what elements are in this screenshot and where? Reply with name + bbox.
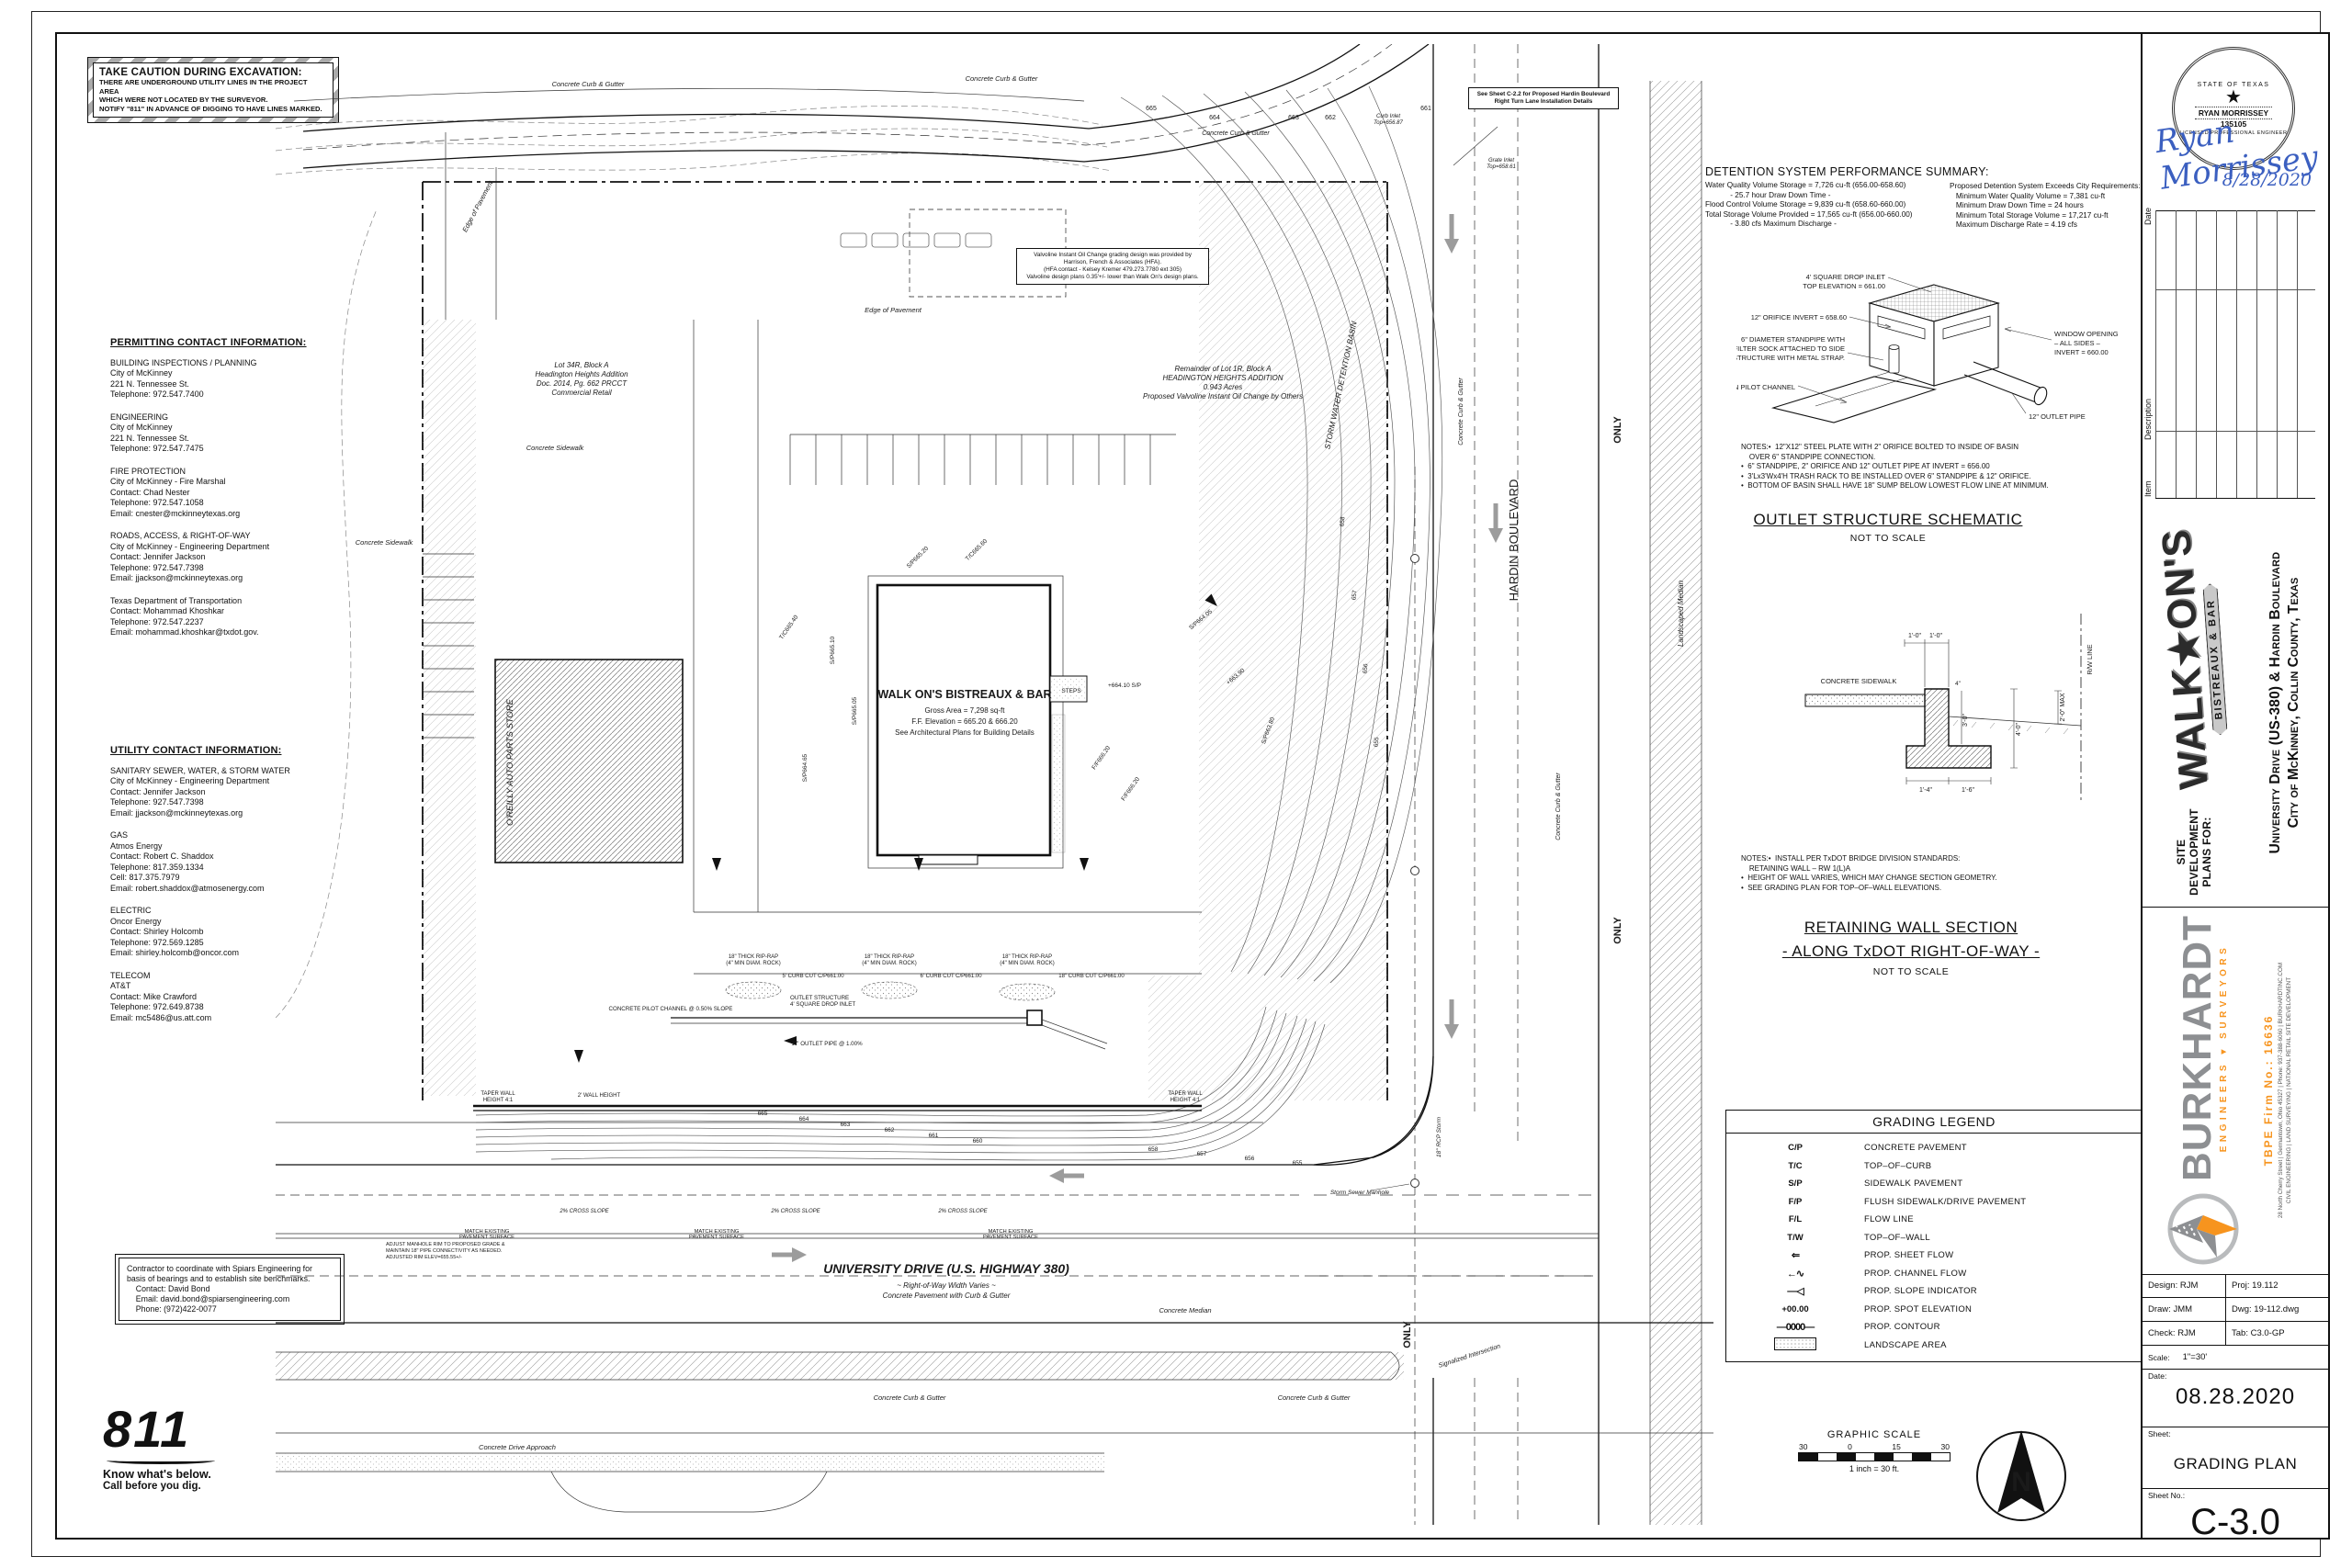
legend-symbol: F/P — [1726, 1197, 1864, 1207]
plan-label: 660 — [973, 1138, 983, 1145]
plan-label: 17' OUTLET PIPE @ 1.00% — [791, 1041, 863, 1047]
legend-label: LANDSCAPE AREA — [1864, 1340, 1947, 1350]
plan-label: Concrete Sidewalk — [526, 444, 585, 452]
retaining-title: RETAINING WALL SECTION — [1769, 919, 2053, 937]
811-tagline-1: Know what's below. — [103, 1468, 241, 1481]
sheet-no-label: Sheet No.: — [2148, 1491, 2323, 1500]
sheet-flow-icon: ⇐ — [1726, 1249, 1864, 1261]
scale-tick: 0 — [1848, 1442, 1852, 1451]
plan-label: 2% CROSS SLOPE — [559, 1209, 609, 1214]
retaining-notes: NOTES:• INSTALL PER TxDOT BRIDGE DIVISIO… — [1741, 854, 2173, 893]
plan-label: OUTLET STRUCTURE — [790, 995, 849, 1001]
retaining-label: 4" — [1955, 681, 1962, 687]
detention-basin-hatch — [1148, 182, 1387, 1100]
detention-left-column: Water Quality Volume Storage = 7,726 cu-… — [1705, 181, 1937, 231]
plan-label: +664.10 S/P — [1108, 682, 1141, 689]
sheet-number: C-3.0 — [2148, 1502, 2323, 1543]
graphic-scale-title: GRAPHIC SCALE — [1773, 1429, 1975, 1440]
university-median-hatch — [276, 1352, 1404, 1380]
legend-row: T/WTOP–OF–WALL — [1726, 1229, 2142, 1247]
plan-label: HARDIN BOULEVARD — [1507, 479, 1521, 602]
plan-label: (4" MIN DIAM. ROCK) — [862, 961, 916, 966]
plan-label: ADJUSTED RIM ELEV=655.55+/- — [386, 1255, 462, 1260]
plan-label: 2% CROSS SLOPE — [937, 1209, 988, 1214]
title-block: Date Description Item STATE OF TEXAS ★ R… — [2141, 32, 2330, 1540]
plan-label: 0.943 Acres — [1204, 383, 1242, 391]
pilot-channel — [671, 982, 1107, 1049]
plan-label: 665 — [1146, 106, 1157, 112]
south-sidewalk-stipple — [276, 1453, 1104, 1472]
plan-label: 6' CURB CUT C/P661.00 — [920, 974, 982, 979]
plan-label: Lot 34R, Block A — [554, 361, 608, 369]
outlet-structure-schematic: 4' SQUARE DROP INLETTOP ELEVATION = 661.… — [1736, 268, 2150, 438]
plan-label: Concrete Drive Approach — [479, 1443, 556, 1451]
plan-label: 661 — [929, 1133, 939, 1139]
outlet-label: 4' SQUARE DROP INLET — [1806, 273, 1886, 281]
scale-tick: 15 — [1892, 1442, 1900, 1451]
retaining-label: 3'-0" — [1962, 714, 1969, 727]
oreilly-building — [495, 660, 683, 863]
legend-symbol: T/W — [1726, 1233, 1864, 1243]
plan-label: (4" MIN DIAM. ROCK) — [1000, 961, 1054, 966]
legend-label: PROP. SPOT ELEVATION — [1864, 1304, 1972, 1314]
plan-label: CONCRETE PILOT CHANNEL @ 0.50% SLOPE — [609, 1006, 733, 1012]
retaining-label: CONCRETE SIDEWALK — [1821, 677, 1897, 685]
plan-label: Doc. 2014, Pg. 662 PRCCT — [537, 379, 628, 388]
plan-label: WALK ON'S BISTREAUX & BAR — [877, 688, 1051, 701]
plan-label: STEPS — [1061, 688, 1081, 694]
see-sheet-note-box: See Sheet C-2.2 for Proposed Hardin Boul… — [1468, 87, 1619, 109]
plan-label: UNIVERSITY DRIVE (U.S. HIGHWAY 380) — [823, 1261, 1069, 1276]
legend-row: —0000—PROP. CONTOUR — [1726, 1318, 2142, 1337]
retaining-label: 1'-6" — [1962, 787, 1974, 794]
legend-row: —◁PROP. SLOPE INDICATOR — [1726, 1282, 2142, 1301]
detention-title: DETENTION SYSTEM PERFORMANCE SUMMARY: — [1705, 165, 2148, 178]
plan-label: Concrete Curb & Gutter — [552, 80, 625, 88]
plan-label: 662 — [1325, 115, 1336, 121]
spot-elevation-symbol: +00.00 — [1726, 1304, 1864, 1314]
legend-row: +00.00PROP. SPOT ELEVATION — [1726, 1301, 2142, 1319]
outlet-schematic-title: OUTLET STRUCTURE SCHEMATIC — [1750, 511, 2026, 529]
retaining-notes-lines: • INSTALL PER TxDOT BRIDGE DIVISION STAN… — [1741, 854, 1997, 892]
tbpe-number: TBPE Firm No.: 16636 — [2262, 907, 2275, 1274]
valvoline-note-box: Valvoline Instant Oil Change grading des… — [1016, 248, 1209, 285]
plan-label: Concrete Median — [1159, 1306, 1211, 1314]
plan-label: Concrete Curb & Gutter — [1278, 1393, 1351, 1402]
retaining-label: 1'-4" — [1919, 787, 1932, 794]
plan-label: Remainder of Lot 1R, Block A — [1174, 365, 1271, 373]
legend-row: F/PFLUSH SIDEWALK/DRIVE PAVEMENT — [1726, 1193, 2142, 1212]
plan-label: 4' SQUARE DROP INLET — [790, 1001, 855, 1008]
legend-symbol: S/P — [1726, 1179, 1864, 1189]
channel-flow-icon: ←∿ — [1726, 1268, 1864, 1280]
plan-label: 2' WALL HEIGHT — [578, 1093, 621, 1099]
drawn-by: Draw: JMM — [2143, 1298, 2226, 1321]
retaining-label: 4'-0" — [2016, 723, 2022, 736]
burkhardt-wordmark: BURKHARDT — [2177, 907, 2218, 1190]
plan-label: Concrete Pavement with Curb & Gutter — [883, 1292, 1011, 1300]
plan-label: Concrete Curb & Gutter — [966, 74, 1038, 83]
firm-services: CIVIL ENGINEERING | LAND SURVEYING | NAT… — [2286, 907, 2292, 1274]
plan-label: Concrete Curb & Gutter — [874, 1393, 946, 1402]
plan-label: S/P665.05 — [852, 696, 858, 725]
retaining-subtitle: - ALONG TxDOT RIGHT-OF-WAY - — [1769, 942, 2053, 961]
plan-label: 657 — [1351, 590, 1359, 601]
plan-label: Top=656.87 — [1374, 120, 1403, 126]
legend-label: PROP. CHANNEL FLOW — [1864, 1269, 1967, 1279]
plan-label: TAPER WALL — [1168, 1091, 1203, 1097]
scale-bar — [1798, 1452, 1951, 1461]
outlet-schematic-scale: NOT TO SCALE — [1750, 533, 2026, 544]
retaining-label: 1'-0" — [1929, 633, 1942, 639]
plan-label: 662 — [885, 1127, 895, 1134]
plan-label: ONLY — [1402, 1321, 1413, 1348]
retaining-wall — [473, 1106, 1202, 1111]
rev-col-description: Description — [2143, 427, 2153, 440]
plan-label: ONLY — [1612, 917, 1623, 944]
retaining-labels: CONCRETE SIDEWALKR/W LINE1'-0"1'-0"4"2'-… — [1821, 633, 2094, 794]
plan-label: 18" THICK RIP-RAP — [865, 954, 914, 960]
date-label: Date: — [2148, 1371, 2323, 1381]
plan-label: Concrete Curb & Gutter — [1202, 130, 1270, 137]
parking-stalls — [423, 320, 1202, 974]
plan-label: Edge of Pavement — [460, 179, 494, 234]
plan-label: F/F666.20 — [1120, 776, 1141, 803]
plan-label: 661 — [1420, 106, 1431, 112]
plan-label: Concrete Curb & Gutter — [1458, 378, 1464, 446]
plan-label: 664 — [1209, 115, 1220, 121]
legend-row: T/CTOP–OF–CURB — [1726, 1157, 2142, 1176]
detention-right-column: Proposed Detention System Exceeds City R… — [1950, 181, 2148, 231]
outlet-label: INVERT = 660.00 — [2054, 348, 2109, 356]
call-811-logo: 811 Know what's below. Call before you d… — [103, 1404, 241, 1492]
plan-label: Commercial Retail — [551, 389, 612, 397]
contour-symbol: —0000— — [1726, 1322, 1864, 1333]
outlet-label: WINDOW OPENING — [2054, 330, 2119, 338]
project-line2: City of McKinney, Collin County, Texas — [2286, 498, 2302, 907]
checked-by: Check: RJM — [2143, 1322, 2226, 1345]
legend-symbol: T/C — [1726, 1161, 1864, 1171]
plan-label: Proposed Valvoline Instant Oil Change by… — [1143, 392, 1303, 400]
plan-label: HEIGHT 4:1 — [483, 1098, 514, 1103]
plan-label: ADJUST MANHOLE RIM TO PROPOSED GRADE & — [386, 1242, 505, 1247]
grading-legend: GRADING LEGEND C/PCONCRETE PAVEMENT T/CT… — [1725, 1110, 2143, 1362]
plan-label: Landscaped Median — [1677, 580, 1685, 647]
hardin-median-hatch — [1650, 81, 1702, 1525]
811-number: 811 — [103, 1404, 241, 1455]
legend-label: TOP–OF–WALL — [1864, 1233, 1930, 1243]
retaining-notes-title: NOTES: — [1741, 854, 1769, 863]
firm-address: 28 North Cherry Street | Germantown, Ohi… — [2278, 907, 2284, 1274]
firm-block: BURKHARDT ENGINEERS ▾ SURVEYORS TBPE Fir… — [2143, 907, 2328, 1275]
signature-date: 8/28/2020 — [2222, 170, 2312, 190]
rev-col-date: Date — [2143, 212, 2153, 225]
north-arrow: N — [1973, 1419, 2069, 1528]
scale-label: Scale: — [2148, 1353, 2170, 1362]
plan-label: See Architectural Plans for Building Det… — [895, 728, 1035, 737]
plan-label: F/F666.20 — [1091, 745, 1112, 772]
plans-for-tag1: SITE DEVELOPMENT — [2175, 796, 2200, 907]
pe-seal-area: STATE OF TEXAS ★ RYAN MORRISSEY 135105 L… — [2155, 34, 2315, 211]
plan-label: 18" RCP Storm — [1436, 1116, 1442, 1157]
plan-label: ONLY — [1612, 416, 1623, 444]
plan-label: Grate Inlet — [1488, 158, 1514, 164]
walkons-logo: WALK★ON'S BISTREAUX & BAR — [2165, 521, 2222, 796]
seal-star-icon: ★ — [2225, 88, 2242, 107]
plan-label: 663 — [841, 1122, 851, 1128]
outlet-label: OF STRUCTURE WITH METAL STRAP. — [1736, 354, 1845, 362]
legend-row: ⇐PROP. SHEET FLOW — [1726, 1247, 2142, 1265]
burkhardt-tagline: ENGINEERS ▾ SURVEYORS — [2219, 907, 2229, 1190]
design-by: Design: RJM — [2143, 1274, 2226, 1297]
retaining-scale: NOT TO SCALE — [1769, 966, 2053, 977]
plans-for-tag2: PLANS FOR: — [2200, 796, 2213, 907]
plan-label: 658 — [1148, 1146, 1159, 1153]
slope-indicator-icon: —◁ — [1726, 1285, 1864, 1297]
outlet-notes-lines: • 12"X12" STEEL PLATE WITH 2" ORIFICE BO… — [1741, 443, 2049, 490]
outlet-label: 12" OUTLET PIPE — [2029, 412, 2086, 421]
legend-label: PROP. CONTOUR — [1864, 1322, 1940, 1332]
plan-label: HEIGHT 4:1 — [1170, 1098, 1201, 1103]
retaining-label: 1'-0" — [1908, 633, 1921, 639]
plan-label: Gross Area = 7,298 sq-ft — [925, 706, 1006, 715]
outlet-notes: NOTES:• 12"X12" STEEL PLATE WITH 2" ORIF… — [1741, 443, 2173, 491]
legend-label: PROP. SLOPE INDICATOR — [1864, 1286, 1977, 1296]
outlet-label: – ALL SIDES – — [2054, 339, 2101, 347]
outlet-label: BASIN PILOT CHANNEL — [1736, 383, 1795, 391]
legend-label: FLOW LINE — [1864, 1214, 1914, 1224]
dwg-file: Dwg: 19-112.dwg — [2226, 1304, 2299, 1314]
plan-label: 655 — [1293, 1160, 1303, 1167]
plan-label: MAINTAIN 18" PIPE CONNECTIVITY AS NEEDED… — [386, 1248, 503, 1254]
basin-pilot-channel-shape — [1773, 377, 1935, 423]
plan-label: 2% CROSS SLOPE — [770, 1209, 820, 1214]
graphic-scale: GRAPHIC SCALE 30 0 15 30 1 inch = 30 ft. — [1773, 1429, 1975, 1473]
parked-cars — [841, 233, 991, 247]
plan-label: Storm Sewer Manhole — [1330, 1190, 1390, 1196]
legend-label: TOP–OF–CURB — [1864, 1161, 1931, 1171]
site-plan-drawing: Concrete Curb & GutterConcrete Curb & Gu… — [276, 44, 1713, 1528]
scale-tick: 30 — [1799, 1442, 1807, 1451]
plan-label: 665 — [758, 1111, 768, 1117]
legend-row: LANDSCAPE AREA — [1726, 1337, 2142, 1355]
plan-label: T/C665.40 — [778, 614, 799, 640]
legend-label: PROP. SHEET FLOW — [1864, 1250, 1953, 1260]
legend-symbol: F/L — [1726, 1214, 1864, 1224]
plan-label: 656 — [1245, 1156, 1255, 1162]
rev-col-item: Item — [2143, 484, 2153, 497]
plan-label: T/C665.60 — [965, 537, 989, 562]
plan-label: Top=658.61 — [1487, 164, 1516, 170]
plan-label: 656 — [1363, 663, 1370, 674]
plan-label: 663 — [1288, 115, 1299, 121]
811-swoosh-icon — [107, 1457, 215, 1464]
plan-label: Curb Inlet — [1376, 114, 1400, 119]
sheet-date: 08.28.2020 — [2148, 1384, 2323, 1410]
walkons-wordmark: WALK★ON'S — [2156, 520, 2216, 797]
plan-label: S/P665.20 — [906, 545, 931, 570]
plan-label: Edge of Pavement — [865, 306, 922, 314]
legend-title: GRADING LEGEND — [1726, 1111, 2142, 1134]
retaining-label: R/W LINE — [2086, 644, 2094, 674]
scale-value: 1"=30' — [2183, 1352, 2208, 1362]
legend-row: C/PCONCRETE PAVEMENT — [1726, 1139, 2142, 1157]
legend-row: S/PSIDEWALK PAVEMENT — [1726, 1175, 2142, 1193]
scale-note: 1 inch = 30 ft. — [1773, 1464, 1975, 1473]
legend-label: FLUSH SIDEWALK/DRIVE PAVEMENT — [1864, 1197, 2026, 1207]
plan-label: 18" THICK RIP-RAP — [729, 954, 778, 960]
outlet-label: 12" ORIFICE INVERT = 658.60 — [1751, 313, 1847, 321]
plan-label: 658 — [1340, 516, 1347, 527]
revision-table — [2155, 210, 2315, 499]
plan-label: O'REILLY AUTO PARTS STORE — [505, 698, 515, 826]
outlet-notes-title: NOTES: — [1741, 443, 1769, 451]
legend-symbol: C/P — [1726, 1143, 1864, 1153]
plan-label: PAVEMENT SURFACE — [983, 1235, 1038, 1240]
811-tagline-2: Call before you dig. — [103, 1481, 241, 1492]
landscape-area-swatch — [1774, 1337, 1816, 1350]
sidewalk-slab — [1805, 694, 1925, 706]
project-block: SITE DEVELOPMENT PLANS FOR: WALK★ON'S BI… — [2143, 498, 2328, 908]
plan-label: PAVEMENT SURFACE — [689, 1235, 744, 1240]
outlet-label: TOP ELEVATION = 661.00 — [1803, 282, 1885, 290]
plan-label: Signalized Intersection — [1438, 1343, 1501, 1369]
plan-label: PAVEMENT SURFACE — [459, 1235, 514, 1240]
plan-label: ~ Right-of-Way Width Varies ~ — [897, 1281, 996, 1290]
sheet-title: GRADING PLAN — [2148, 1455, 2323, 1473]
plan-label: 18" CURB CUT C/P661.00 — [1058, 974, 1125, 979]
legend-label: CONCRETE PAVEMENT — [1864, 1143, 1967, 1153]
plan-label: Concrete Sidewalk — [356, 538, 414, 547]
plan-label: 664 — [799, 1116, 809, 1122]
burkhardt-logo-icon — [2164, 1190, 2243, 1269]
legend-row: ←∿PROP. CHANNEL FLOW — [1726, 1265, 2142, 1283]
plan-label: Headington Heights Addition — [535, 370, 628, 378]
plan-label: F.F. Elevation = 665.20 & 666.20 — [911, 717, 1018, 726]
detention-summary: DETENTION SYSTEM PERFORMANCE SUMMARY: Wa… — [1705, 165, 2148, 231]
north-letter: N — [2011, 1467, 2031, 1497]
outlet-pipe-end — [2032, 385, 2050, 406]
outlet-label: FILTER SOCK ATTACHED TO SIDE — [1736, 344, 1845, 353]
legend-row: F/LFLOW LINE — [1726, 1211, 2142, 1229]
dwg-tab: Tab: C3.0-GP — [2226, 1328, 2285, 1338]
plan-label: S/P664.65 — [802, 753, 808, 782]
outlet-label: 6" DIAMETER STANDPIPE WITH — [1741, 335, 1845, 344]
legend-label: SIDEWALK PAVEMENT — [1864, 1179, 1962, 1189]
project-number: Proj: 19.112 — [2226, 1280, 2278, 1291]
retaining-wall-section: CONCRETE SIDEWALKR/W LINE1'-0"1'-0"4"2'-… — [1778, 606, 2136, 831]
sheet-label: Sheet: — [2148, 1429, 2323, 1438]
standpipe — [1889, 347, 1899, 373]
grading-plan-sheet: TAKE CAUTION DURING EXCAVATION: THERE AR… — [0, 0, 2352, 1568]
plan-label: TAPER WALL — [481, 1091, 515, 1097]
plan-label: 655 — [1374, 737, 1381, 748]
plan-label: 657 — [1197, 1151, 1207, 1157]
plan-label: HEADINGTON HEIGHTS ADDITION — [1162, 374, 1283, 382]
plan-label: (4" MIN DIAM. ROCK) — [726, 961, 780, 966]
project-line1: University Drive (US-380) & Hardin Boule… — [2267, 498, 2284, 907]
plan-label: 5' CURB CUT C/P661.00 — [782, 974, 844, 979]
plan-label: 18" THICK RIP-RAP — [1002, 954, 1052, 960]
plan-label: S/P665.10 — [830, 636, 836, 664]
scale-tick: 30 — [1941, 1442, 1950, 1451]
retaining-label: 2'-0" MAX — [2060, 693, 2066, 721]
plan-label: Concrete Curb & Gutter — [1555, 773, 1562, 840]
west-landscape-hatch — [423, 320, 476, 1096]
sheet-info-block: Design: RJMProj: 19.112 Draw: JMMDwg: 19… — [2143, 1274, 2328, 1538]
